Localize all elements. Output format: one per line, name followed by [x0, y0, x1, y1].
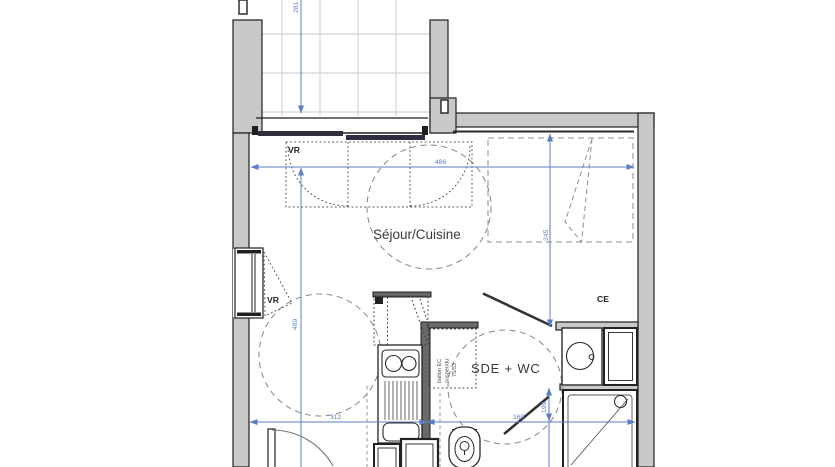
terrace-tile-grid: [262, 0, 430, 116]
left-window: [233, 248, 263, 318]
wall-kitchen-stub: [373, 292, 431, 297]
bay-post-left: [252, 126, 258, 135]
water-heater-note-line3: 75/53: [452, 363, 458, 377]
wall-terrace-left: [233, 20, 262, 133]
bay-glazing-panel-left: [258, 131, 343, 136]
sliding-bay-window: [252, 118, 428, 140]
door-swing-arc-entrance: [272, 430, 333, 466]
furniture-dashed-triangle: [565, 139, 592, 242]
bathroom-block: [429, 294, 637, 467]
wall-marker-top-left: [239, 0, 247, 14]
bay-post-right: [422, 126, 428, 135]
base-cabinet-right: [401, 439, 438, 467]
dim-label-top-width: 486: [435, 159, 447, 166]
dim-label-left-depth: 489: [292, 318, 299, 330]
dim-label-terrace-depth: 281: [293, 1, 300, 13]
kitchen-corner-mark: [375, 297, 383, 304]
door-leaf-entrance: [268, 429, 275, 467]
window-opening-triangle: [264, 252, 292, 316]
dim-label-bottom-left: 312: [330, 414, 342, 421]
bay-glazing-panel-right: [346, 135, 425, 140]
label-ce: CE: [597, 294, 609, 304]
room-label-sde-wc: SDE + WC: [471, 361, 541, 376]
label-vr-top: VR: [288, 145, 301, 155]
dim-label-shower-depth: 199: [541, 401, 548, 413]
door-swing-arc-left: [288, 146, 348, 206]
furniture-dashed-zone: [488, 138, 633, 242]
vanity-unit: [562, 328, 602, 385]
water-heater-note-line2: suspendu: [445, 359, 451, 383]
water-heater-note-line1: ballon EC: [437, 359, 443, 383]
label-vr-left: VR: [267, 295, 280, 305]
wall-marker-top-right: [441, 100, 448, 113]
floor-plan-canvas: Séjour/Cuisine SDE + WC CE VR VR 486 312…: [0, 0, 835, 467]
turning-circle-kitchen: [259, 294, 381, 416]
dim-label-bottom-right: 169: [513, 414, 525, 421]
wall-sde-stub: [428, 322, 478, 328]
door-leaf-sde-top: [483, 294, 552, 327]
wall-right: [638, 113, 654, 467]
side-cabinet: [604, 328, 637, 385]
wall-top-right-band: [448, 113, 654, 127]
toilet-icon: [449, 427, 480, 467]
door-swing-arc-right: [410, 146, 470, 206]
dim-label-right-depth: 245: [543, 229, 550, 241]
floor-plan-drawing: Séjour/Cuisine SDE + WC CE VR VR 486 312…: [0, 0, 835, 467]
shutter-projection-top: [286, 142, 472, 207]
room-label-sejour-cuisine: Séjour/Cuisine: [373, 227, 461, 242]
shower-tray-icon: [563, 390, 637, 467]
wall-markers: [239, 0, 448, 113]
